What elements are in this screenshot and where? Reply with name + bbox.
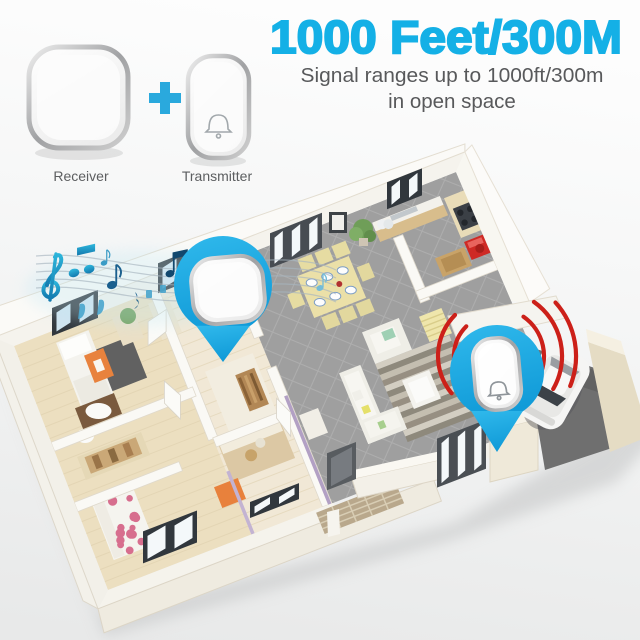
svg-text:Signal ranges up to 1000ft/300: Signal ranges up to 1000ft/300m <box>301 64 604 87</box>
svg-text:Transmitter: Transmitter <box>182 168 253 184</box>
svg-text:Receiver: Receiver <box>53 168 109 184</box>
svg-text:1000 Feet/300M: 1000 Feet/300M <box>270 11 622 63</box>
svg-text:in open space: in open space <box>388 90 516 113</box>
